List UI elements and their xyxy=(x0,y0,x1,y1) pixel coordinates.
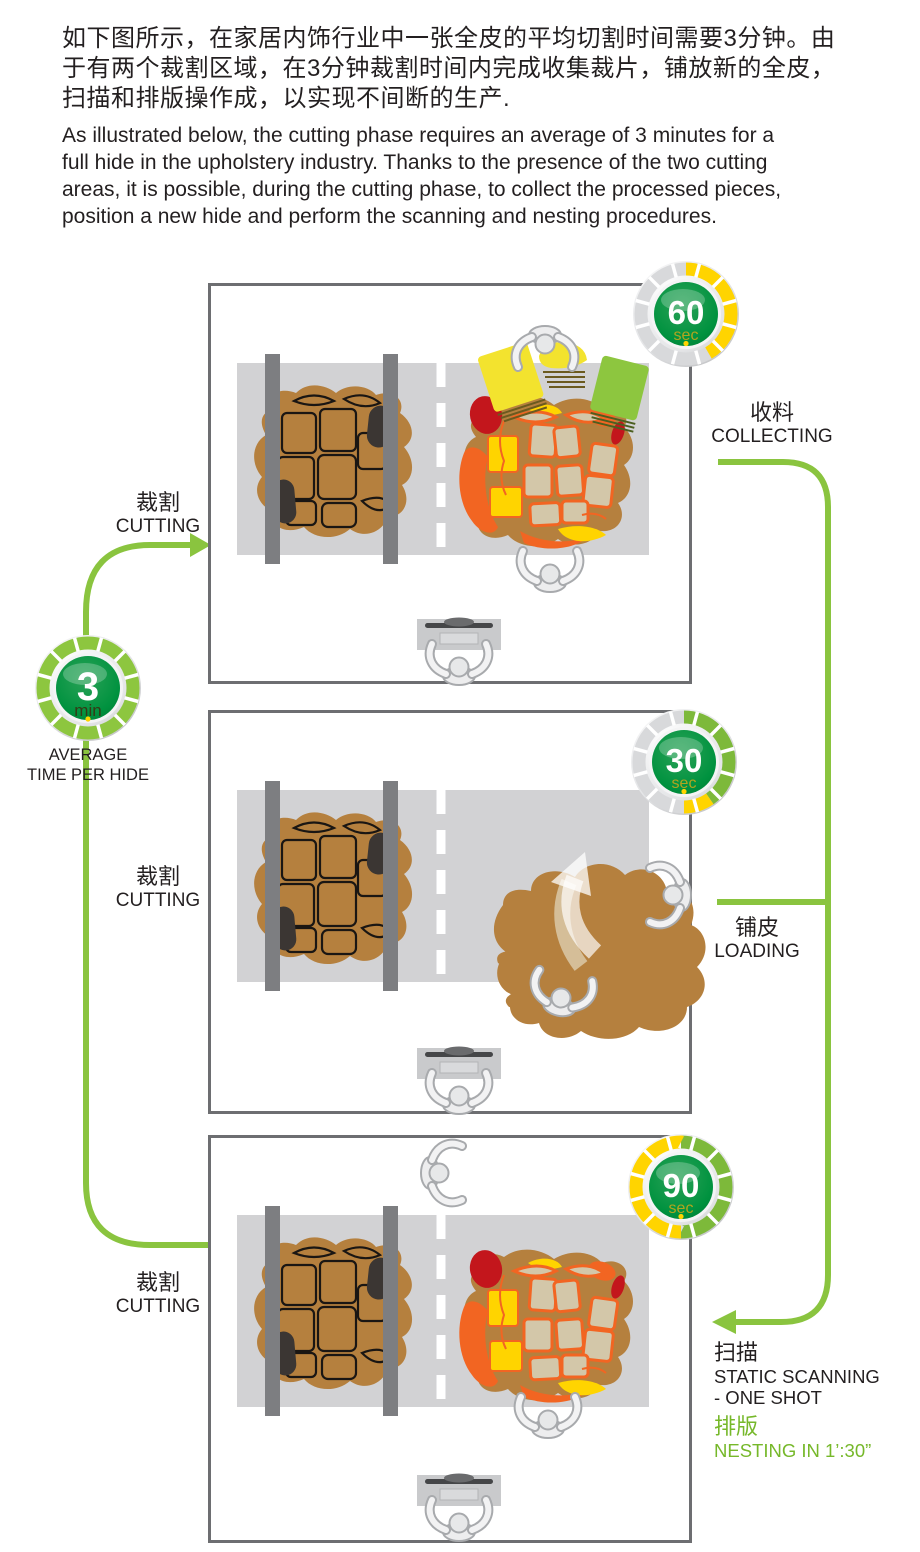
timer-90sec-badge: 90 sec xyxy=(626,1132,736,1242)
label-collecting: 收料 COLLECTING xyxy=(710,400,834,448)
intro-en-line: position a new hide and perform the scan… xyxy=(62,203,882,230)
label-static-scanning: 扫描 STATIC SCANNING - ONE SHOT xyxy=(714,1340,914,1408)
worker-bottom-icon xyxy=(521,551,580,592)
panel-2-illustration xyxy=(211,713,683,1105)
timer-60sec-badge: 60 sec xyxy=(631,259,741,369)
panel-1-illustration xyxy=(211,286,683,675)
intro-en-line: As illustrated below, the cutting phase … xyxy=(62,122,882,149)
panel-cutting-loading xyxy=(208,710,692,1114)
label-zh: 裁割 xyxy=(98,490,218,516)
intro-zh-line: 扫描和排版操作成，以实现不间断的生产. xyxy=(62,84,872,114)
label-cutting-1: 裁割 CUTTING xyxy=(98,490,218,538)
label-en: NESTING IN 1’:30” xyxy=(714,1440,920,1461)
label-en: CUTTING xyxy=(98,516,218,538)
intro-zh-line: 如下图所示，在家居内饰行业中一张全皮的平均切割时间需要3分钟。由 xyxy=(62,24,872,54)
label-zh: 裁割 xyxy=(98,864,218,890)
intro-paragraph-chinese: 如下图所示，在家居内饰行业中一张全皮的平均切割时间需要3分钟。由 于有两个裁割区… xyxy=(62,24,872,114)
panel-cutting-collecting xyxy=(208,283,692,684)
operator-workstation-icon xyxy=(417,1474,501,1542)
panel-cutting-scanning xyxy=(208,1135,692,1543)
hide-nested-pieces-icon xyxy=(459,1247,633,1402)
caption-line: TIME PER HIDE xyxy=(18,765,158,785)
average-time-badge: 3 min xyxy=(33,633,143,743)
label-en: COLLECTING xyxy=(710,426,834,448)
label-zh: 排版 xyxy=(714,1414,920,1440)
caption-line: AVERAGE xyxy=(18,745,158,765)
panel-3-illustration xyxy=(211,1138,683,1534)
intro-zh-line: 于有两个裁割区域，在3分钟裁割时间内完成收集裁片，铺放新的全皮， xyxy=(62,54,872,84)
label-en: CUTTING xyxy=(98,890,218,912)
operator-workstation-icon xyxy=(417,1047,501,1115)
worker-top-icon xyxy=(421,1144,462,1203)
arrowhead-into-scanning xyxy=(712,1310,736,1334)
label-zh: 铺皮 xyxy=(695,915,819,941)
timer-30sec-badge: 30 sec xyxy=(629,707,739,817)
label-en: STATIC SCANNING xyxy=(714,1366,914,1387)
intro-en-line: areas, it is possible, during the cuttin… xyxy=(62,176,882,203)
label-en: CUTTING xyxy=(98,1296,218,1318)
leather-cutting-diagram-page: 如下图所示，在家居内饰行业中一张全皮的平均切割时间需要3分钟。由 于有两个裁割区… xyxy=(0,0,920,1552)
operator-workstation-icon xyxy=(417,618,501,686)
label-en: - ONE SHOT xyxy=(714,1387,914,1408)
label-cutting-3: 裁割 CUTTING xyxy=(98,1270,218,1318)
label-nesting: 排版 NESTING IN 1’:30” xyxy=(714,1414,920,1461)
intro-paragraph-english: As illustrated below, the cutting phase … xyxy=(62,122,882,230)
label-zh: 裁割 xyxy=(98,1270,218,1296)
label-cutting-2: 裁割 CUTTING xyxy=(98,864,218,912)
label-en: LOADING xyxy=(695,941,819,963)
label-loading: 铺皮 LOADING xyxy=(695,915,819,963)
label-zh: 收料 xyxy=(710,400,834,426)
intro-en-line: full hide in the upholstery industry. Th… xyxy=(62,149,882,176)
label-zh: 扫描 xyxy=(714,1340,914,1366)
average-time-caption: AVERAGE TIME PER HIDE xyxy=(18,745,158,785)
